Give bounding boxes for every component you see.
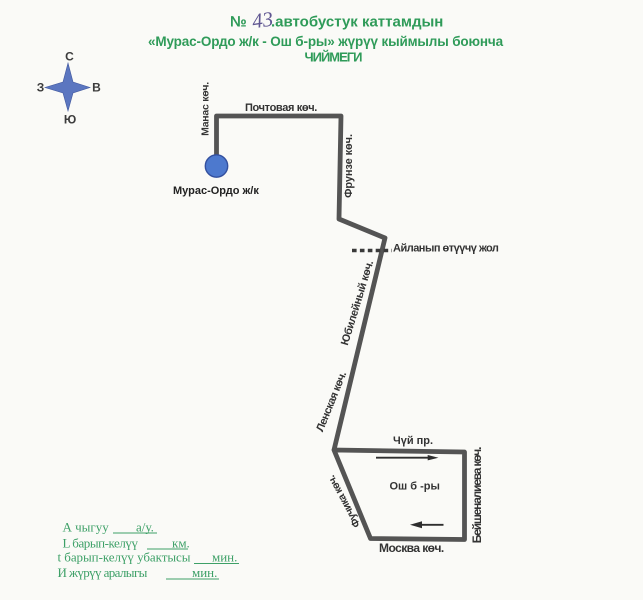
svg-text:t барып-келүү убактысы: t барып-келүү убактысы	[58, 550, 191, 565]
svg-text:.автобустук каттамдын: .автобустук каттамдын	[271, 14, 443, 31]
svg-text:А чыгуу: А чыгуу	[63, 520, 110, 535]
svg-text:З: З	[37, 81, 45, 95]
svg-text:«Мурас-Ордо ж/к - Ош б-ры» жү: «Мурас-Ордо ж/к - Ош б-ры» жүрүү кыймылы…	[148, 34, 504, 49]
svg-text:ЧИЙМЕГИ: ЧИЙМЕГИ	[304, 50, 362, 65]
svg-text:Москва көч.: Москва көч.	[379, 541, 444, 555]
svg-text:Айланып өтүүчү жол: Айланып өтүүчү жол	[393, 243, 499, 255]
svg-text:№: №	[230, 14, 247, 31]
svg-text:L барып-келүү: L барып-келүү	[63, 536, 139, 551]
svg-text:В: В	[92, 81, 101, 95]
svg-text:И жүрүү аралыгы: И жүрүү аралыгы	[58, 565, 148, 580]
svg-text:км.: км.	[172, 536, 190, 551]
svg-text:Мурас-Ордо ж/к: Мурас-Ордо ж/к	[173, 185, 259, 197]
svg-text:Чүй пр.: Чүй пр.	[393, 435, 433, 447]
svg-text:Почтовая көч.: Почтовая көч.	[245, 102, 317, 114]
svg-text:Бейшеналиева көч.: Бейшеналиева көч.	[470, 447, 484, 543]
svg-text:Ош б -ры: Ош б -ры	[390, 481, 440, 493]
svg-text:Манас көч.: Манас көч.	[200, 82, 212, 136]
svg-text:С: С	[65, 50, 74, 64]
svg-text:а/у.: а/у.	[136, 520, 154, 535]
svg-text:мин.: мин.	[192, 565, 217, 580]
svg-text:Ю: Ю	[64, 113, 76, 127]
svg-text:мин.: мин.	[212, 550, 237, 565]
svg-text:Фрунзе көч.: Фрунзе көч.	[343, 134, 355, 198]
